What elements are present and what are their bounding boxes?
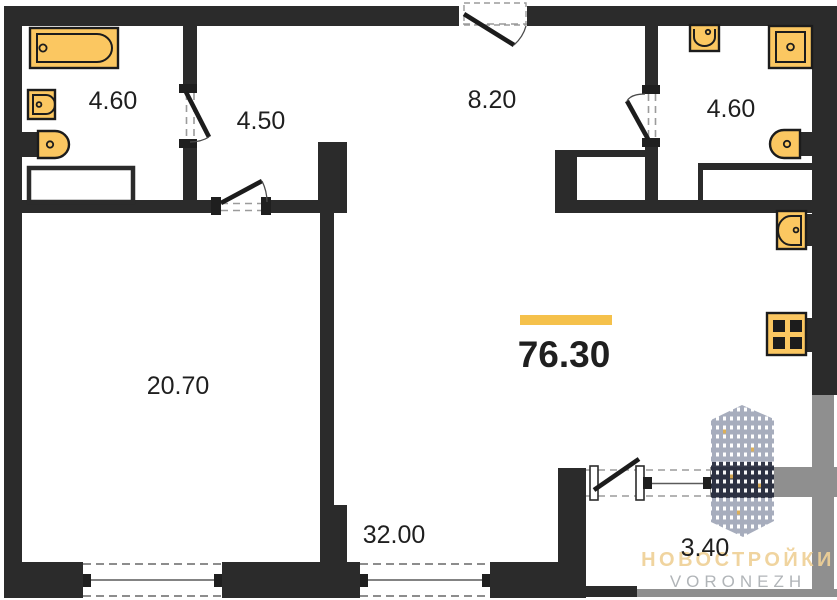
entry-door bbox=[463, 3, 527, 45]
brand-watermark: НОВОСТРОЙКИ VORONEZH bbox=[641, 405, 835, 591]
wall-bathroom-right-upper bbox=[645, 26, 658, 92]
outer-wall-top-left bbox=[4, 6, 459, 26]
total-area-value: 76.30 bbox=[518, 334, 611, 375]
area-label-hallway: 8.20 bbox=[468, 86, 517, 114]
wall-bedroom-living bbox=[320, 213, 334, 565]
door-bathroom-left bbox=[179, 84, 209, 148]
window-bedroom bbox=[83, 564, 222, 596]
outer-wall-bottom-2 bbox=[222, 562, 360, 598]
outer-wall-bottom-1 bbox=[4, 562, 83, 598]
area-label-kitchen-living: 32.00 bbox=[363, 521, 426, 549]
area-label-wardrobe: 4.50 bbox=[237, 107, 286, 135]
wall-shaft2-left bbox=[698, 163, 703, 200]
wall-hall-horizontal-right bbox=[265, 200, 321, 213]
brand-city: VORONEZH bbox=[670, 572, 806, 591]
outer-wall-bottom-4 bbox=[586, 586, 637, 597]
total-area-accent-bar bbox=[520, 315, 612, 325]
area-label-bathroom-left: 4.60 bbox=[89, 87, 138, 115]
window-living bbox=[360, 564, 490, 596]
shaft-niche-2 bbox=[703, 170, 808, 200]
toilet-left-icon bbox=[22, 131, 69, 158]
wall-balcony-left bbox=[558, 468, 586, 565]
brand-name: НОВОСТРОЙКИ bbox=[641, 547, 835, 571]
pillar bbox=[318, 142, 347, 213]
stove-icon bbox=[767, 313, 814, 355]
area-label-bedroom: 20.70 bbox=[147, 372, 210, 400]
wall-shaft2-top bbox=[698, 163, 812, 170]
floor-plan: НОВОСТРОЙКИ VORONEZH 4.60 4.50 8.20 4.60… bbox=[0, 0, 837, 600]
door-wardrobe bbox=[211, 181, 271, 215]
wall-bathroom-left-lower bbox=[183, 140, 197, 202]
toilet-right-icon bbox=[770, 130, 812, 158]
wall-bathroom-left-upper bbox=[183, 26, 197, 92]
closet-niche bbox=[29, 168, 133, 202]
kitchen-sink-icon bbox=[777, 211, 813, 249]
shower-icon bbox=[769, 26, 812, 68]
bathtub-icon bbox=[30, 28, 118, 68]
washbasin-left-icon bbox=[28, 90, 55, 119]
shaft-niche-1 bbox=[577, 157, 645, 200]
area-label-bathroom-right: 4.60 bbox=[707, 95, 756, 123]
area-label-balcony: 3.40 bbox=[681, 534, 730, 562]
wall-bedroom-living-thick bbox=[334, 505, 347, 565]
washbasin-right-icon bbox=[690, 25, 719, 51]
outer-wall-bottom-3 bbox=[490, 562, 586, 598]
door-bathroom-right bbox=[627, 85, 660, 147]
balcony-door bbox=[586, 459, 712, 500]
floor-plan-drawing: НОВОСТРОЙКИ VORONEZH 4.60 4.50 8.20 4.60… bbox=[0, 0, 837, 600]
total-area-badge: 76.30 bbox=[518, 315, 612, 375]
outer-wall-left bbox=[4, 6, 22, 598]
building-tower-icon bbox=[705, 405, 779, 537]
outer-wall-top-right bbox=[527, 6, 837, 26]
